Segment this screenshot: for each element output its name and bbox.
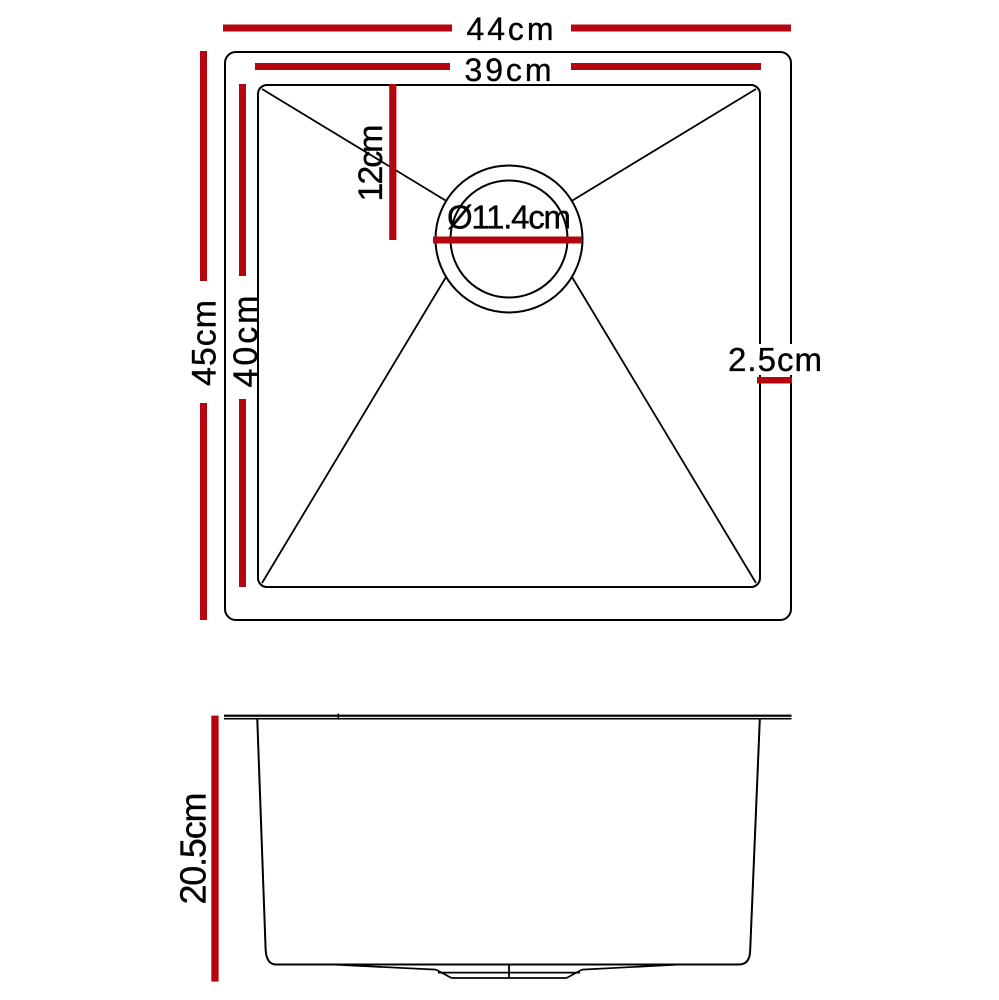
svg-text:45cm: 45cm: [186, 300, 224, 386]
svg-text:20.5cm: 20.5cm: [172, 793, 213, 905]
svg-text:39cm: 39cm: [465, 52, 552, 88]
svg-text:12cm: 12cm: [352, 125, 390, 202]
svg-text:44cm: 44cm: [467, 11, 554, 47]
svg-text:Ø11.4cm: Ø11.4cm: [447, 199, 571, 236]
svg-text:2.5cm: 2.5cm: [728, 341, 822, 378]
svg-text:40cm: 40cm: [227, 296, 265, 388]
